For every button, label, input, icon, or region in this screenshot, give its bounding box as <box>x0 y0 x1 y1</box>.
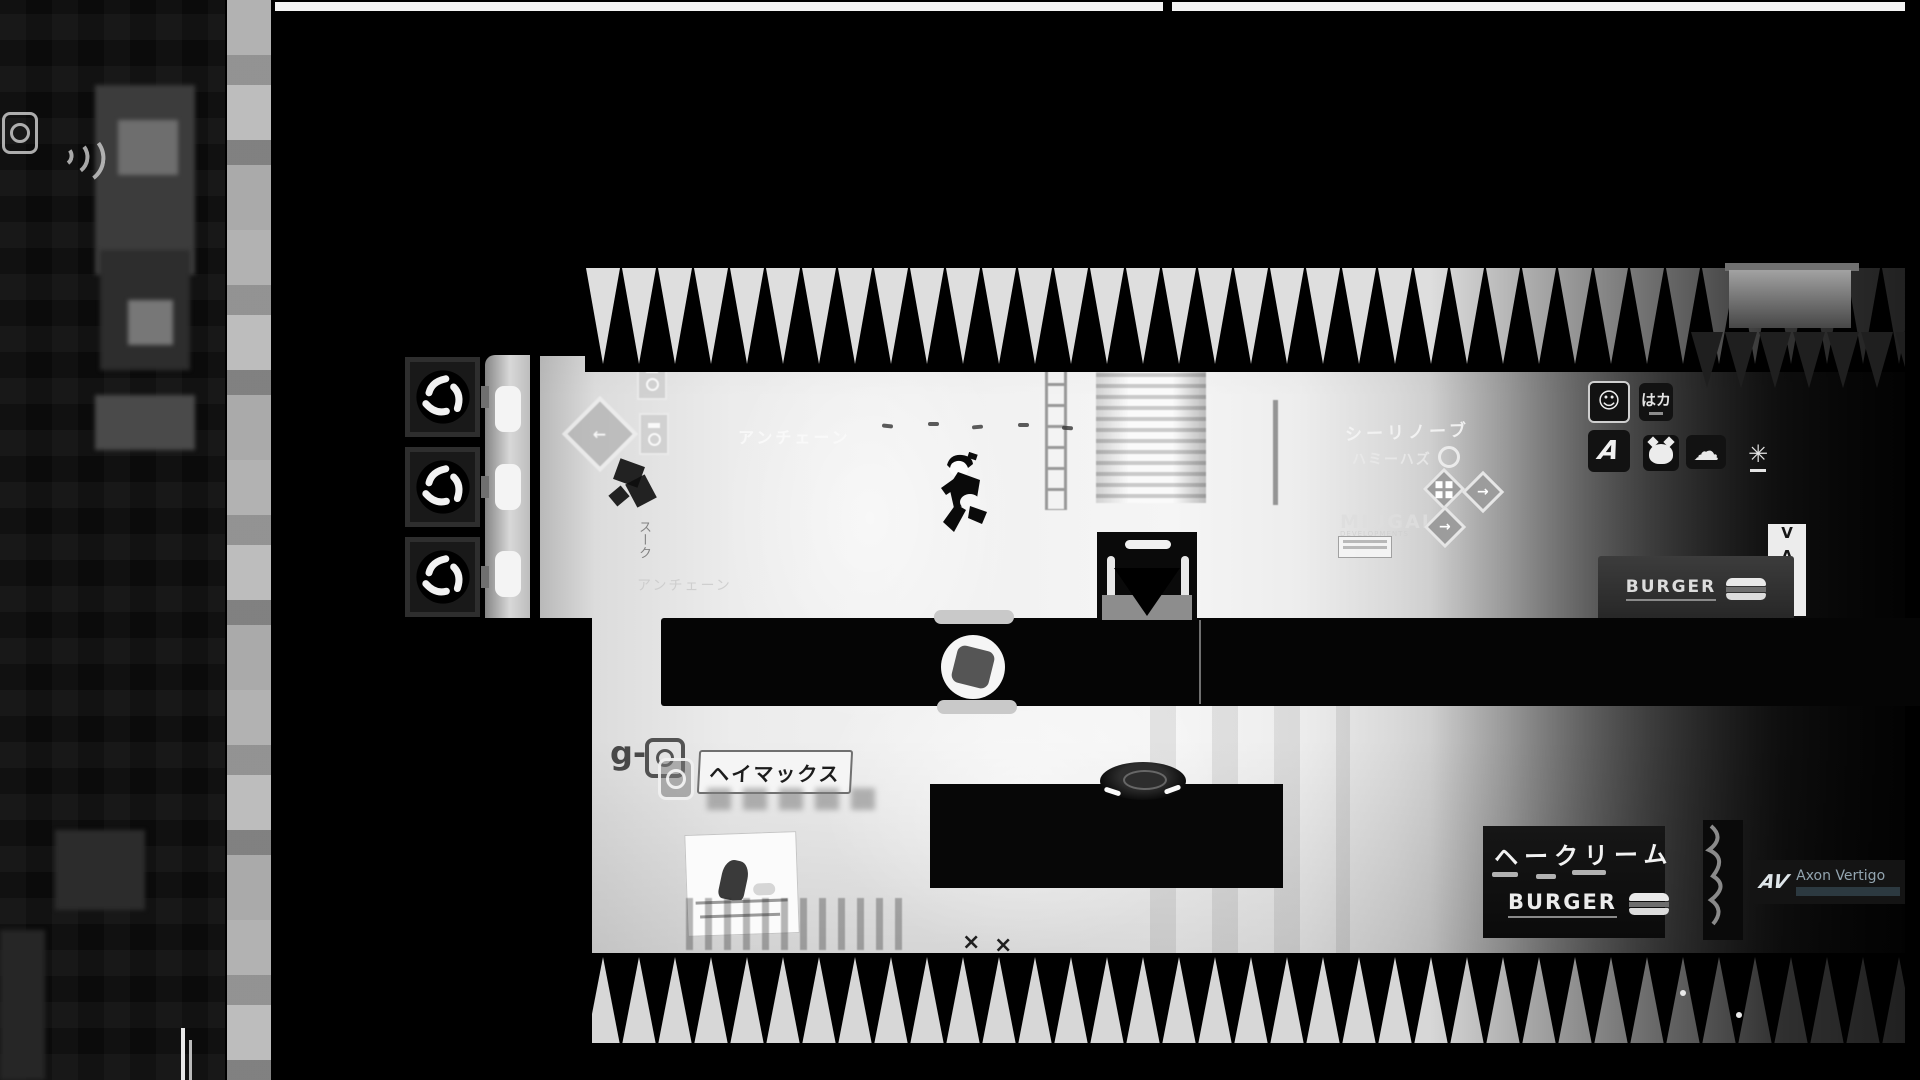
rail-connector <box>937 700 1017 714</box>
miugai-sign: MIUGAI DEVELOPMENTS <box>1340 515 1431 538</box>
fan-emblem-box <box>405 537 480 617</box>
hanging-billboard <box>1729 270 1851 328</box>
axon-text: Axon Vertigo <box>1796 868 1885 884</box>
arrow-left-icon: ← <box>593 425 606 444</box>
arrow-right-icon: → <box>1439 519 1451 535</box>
left-noise-strip <box>227 0 271 1080</box>
floor-black-strip <box>540 1043 1920 1080</box>
small-white-sign <box>1338 536 1392 558</box>
sparkle-icon: ✳ <box>1738 438 1778 474</box>
burger-sign-lower: BURGER <box>1508 890 1669 918</box>
a-logo-icon: A <box>1588 430 1630 472</box>
light-dot <box>1736 1012 1742 1018</box>
heimax-text: ヘイマックス <box>709 758 842 787</box>
fan-emblem-icon <box>415 459 471 515</box>
fan-emblem-box <box>405 357 480 437</box>
burger-icon <box>1629 893 1669 915</box>
neon-sign-text: アンチェーン <box>637 575 732 595</box>
bar-notch <box>1163 2 1172 11</box>
glitch-seam <box>1199 620 1201 704</box>
cross-mark: × <box>962 930 980 955</box>
lower-platform <box>930 784 1283 888</box>
wheel-core <box>950 644 996 690</box>
left-glitch-strip <box>0 0 225 1080</box>
camera-icon <box>658 758 694 800</box>
burger-sign-upper: BURGER <box>1598 556 1794 622</box>
haka-sign: はカ <box>1639 383 1673 421</box>
wifi-icon <box>48 123 107 186</box>
glitch-line <box>189 1040 192 1080</box>
miugai-title: MIUGAI <box>1340 515 1431 530</box>
av-logo-icon: AV <box>1757 871 1791 893</box>
void-patch <box>540 618 592 1080</box>
ground-disc <box>1100 762 1186 800</box>
rail-wheel <box>941 635 1005 699</box>
down-arrow-block <box>1097 532 1197 620</box>
fan-emblem-box <box>405 447 480 527</box>
ninja-player <box>932 452 996 536</box>
burger-icon <box>1726 578 1766 600</box>
burger-text: BURGER <box>1626 577 1717 601</box>
rail-platform <box>661 618 1920 706</box>
axon-vertigo-sign: AV Axon Vertigo <box>1752 860 1913 904</box>
smiley-headphones-icon: ☺ <box>1588 381 1630 423</box>
glitch-line <box>181 1028 185 1080</box>
rail-connector <box>934 610 1014 624</box>
neon-sign-text: シーリノーブ <box>1345 416 1471 445</box>
g-logo-text: g- <box>610 734 646 772</box>
bell-icon <box>1643 435 1679 471</box>
left-wall-column <box>485 355 530 618</box>
cream-sign-text: ヘークリーム <box>1494 834 1674 872</box>
top-white-bar <box>275 2 1918 11</box>
neon-sign-text: アンチェーン <box>738 424 851 448</box>
square-sign-icon <box>639 413 669 455</box>
void-patch <box>540 268 585 356</box>
fan-emblem-icon <box>415 549 471 605</box>
burger-text: BURGER <box>1508 890 1617 918</box>
camera-icon <box>2 112 38 154</box>
right-black-edge <box>1905 0 1920 1080</box>
figure-sketch <box>717 858 751 903</box>
down-arrow-icon <box>1114 568 1180 616</box>
drip-stripes <box>686 898 906 950</box>
antenna-mast <box>1273 400 1278 505</box>
dark-spike-row <box>1690 332 1920 392</box>
blurred-lettering <box>707 788 882 810</box>
graffiti-strip <box>1703 820 1743 940</box>
ribbed-tower <box>1096 355 1206 503</box>
game-viewport[interactable]: ← アンチェーン アンチェーン スーク MIUGAI DEVELOPMENTS … <box>0 0 1920 1080</box>
vertical-sign-text: スーク <box>634 520 653 559</box>
circle-logo-icon <box>1438 446 1460 468</box>
fan-emblem-icon <box>415 369 471 425</box>
ladder-scaffold <box>1045 365 1067 510</box>
arrow-right-icon: → <box>1477 484 1489 500</box>
neon-sign-text: ハミーハズ <box>1352 446 1460 469</box>
light-dot <box>1680 990 1686 996</box>
cloud-icon: ☁ <box>1686 435 1726 469</box>
